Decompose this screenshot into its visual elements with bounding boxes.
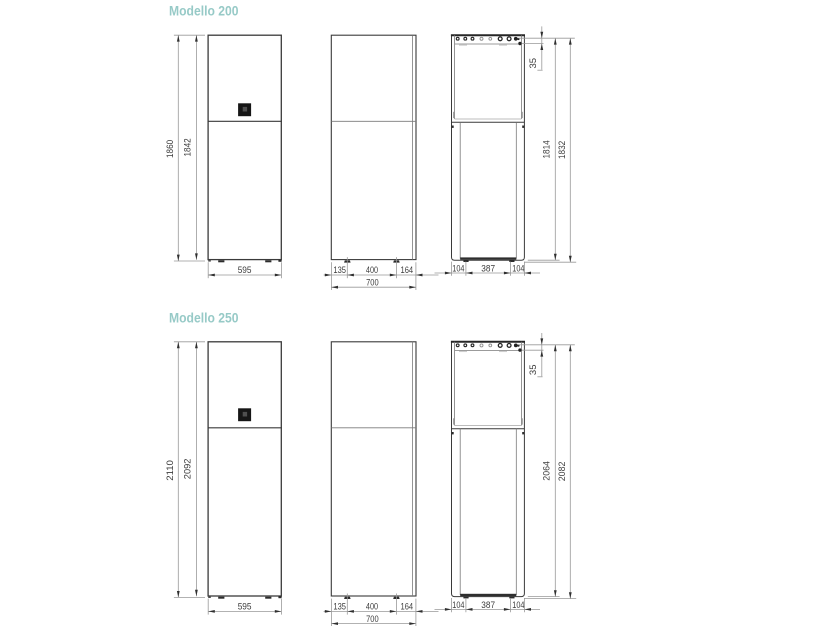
- svg-text:104: 104: [452, 263, 464, 274]
- svg-text:135: 135: [333, 602, 346, 613]
- svg-text:1842: 1842: [182, 138, 193, 156]
- svg-text:1814: 1814: [542, 140, 553, 158]
- svg-text:Modello 200: Modello 200: [169, 4, 239, 19]
- svg-text:400: 400: [366, 602, 378, 613]
- svg-text:387: 387: [481, 263, 495, 274]
- svg-text:1860: 1860: [165, 140, 176, 158]
- svg-text:700: 700: [366, 614, 379, 625]
- svg-text:104: 104: [512, 263, 524, 274]
- svg-text:Modello 250: Modello 250: [169, 311, 239, 326]
- svg-text:387: 387: [481, 600, 495, 611]
- svg-text:700: 700: [366, 277, 379, 288]
- svg-text:35: 35: [528, 58, 539, 69]
- svg-text:164: 164: [401, 265, 414, 276]
- svg-text:164: 164: [401, 602, 414, 613]
- svg-text:1832: 1832: [557, 141, 568, 159]
- svg-text:2110: 2110: [165, 460, 176, 481]
- svg-text:595: 595: [238, 602, 252, 613]
- svg-text:104: 104: [512, 600, 524, 611]
- svg-text:400: 400: [366, 265, 378, 276]
- svg-text:104: 104: [452, 600, 464, 611]
- svg-text:2092: 2092: [182, 459, 193, 480]
- svg-text:35: 35: [528, 365, 539, 376]
- svg-text:595: 595: [238, 265, 252, 276]
- svg-text:2064: 2064: [542, 461, 553, 481]
- svg-text:2082: 2082: [557, 462, 568, 482]
- svg-text:135: 135: [333, 265, 346, 276]
